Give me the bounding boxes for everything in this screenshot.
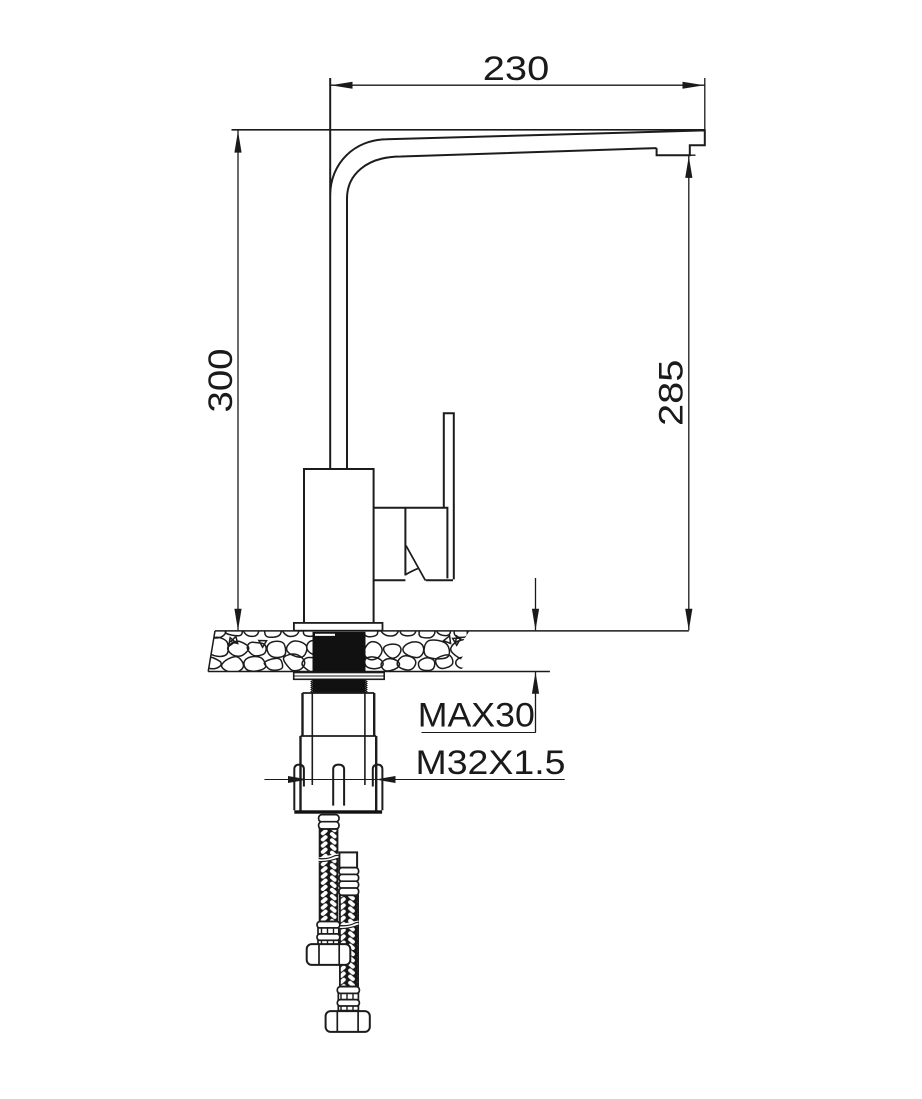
svg-text:300: 300 xyxy=(202,349,240,413)
svg-text:M32X1.5: M32X1.5 xyxy=(416,744,566,782)
svg-text:MAX30: MAX30 xyxy=(418,697,535,735)
svg-text:285: 285 xyxy=(653,360,691,427)
svg-text:230: 230 xyxy=(483,50,550,88)
